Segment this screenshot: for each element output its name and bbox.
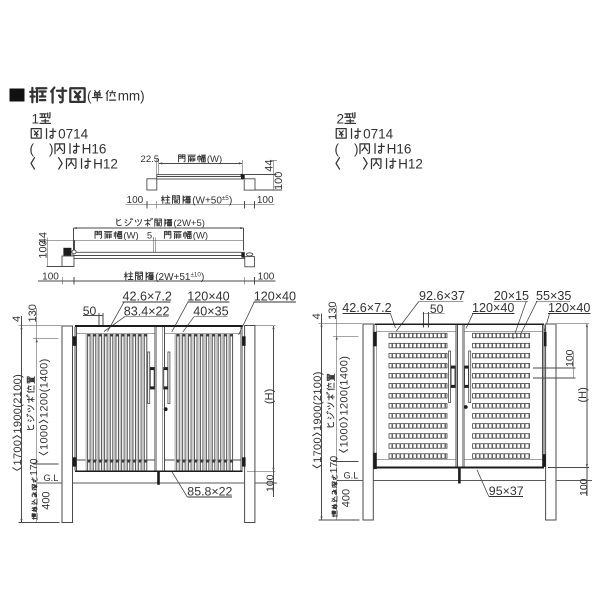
svg-text:400: 400 xyxy=(341,489,353,507)
svg-text:1200(1400): 1200(1400) xyxy=(38,358,50,418)
svg-text:0714: 0714 xyxy=(363,127,394,142)
svg-text:400: 400 xyxy=(41,491,53,509)
svg-text:0714: 0714 xyxy=(58,127,89,142)
svg-text:100: 100 xyxy=(257,195,274,206)
svg-text:1900(2100): 1900(2100) xyxy=(12,374,24,434)
svg-text:1: 1 xyxy=(32,112,40,127)
svg-text:1700: 1700 xyxy=(312,437,324,463)
svg-text:130: 130 xyxy=(27,304,39,322)
svg-text:170: 170 xyxy=(28,458,40,476)
svg-text:1000: 1000 xyxy=(338,422,350,448)
svg-text:(2W+51: (2W+51 xyxy=(155,272,191,283)
svg-text:92.6×37: 92.6×37 xyxy=(419,289,465,303)
svg-text:83.4×22: 83.4×22 xyxy=(124,304,170,318)
svg-text:100: 100 xyxy=(265,474,277,492)
svg-text:(H): (H) xyxy=(577,387,589,402)
svg-text:42.6×7.2: 42.6×7.2 xyxy=(342,301,391,315)
svg-text:): ) xyxy=(229,195,232,206)
svg-text:1200(1400): 1200(1400) xyxy=(338,356,350,416)
svg-text:( ): ( ) xyxy=(335,142,359,157)
svg-text:100: 100 xyxy=(127,195,144,206)
svg-text:H16: H16 xyxy=(82,142,107,157)
svg-text:100: 100 xyxy=(42,272,59,283)
svg-text:40×35: 40×35 xyxy=(193,304,228,318)
svg-text:G.L: G.L xyxy=(344,470,359,480)
svg-text:( ): ( ) xyxy=(30,142,54,157)
svg-text:H12: H12 xyxy=(398,157,423,172)
svg-text:G.L: G.L xyxy=(44,473,59,483)
svg-text:mm): mm) xyxy=(118,89,145,104)
svg-text:2: 2 xyxy=(337,112,345,127)
svg-text:100: 100 xyxy=(37,240,49,258)
svg-text:(W): (W) xyxy=(193,231,208,242)
svg-text:170: 170 xyxy=(328,456,340,474)
svg-text:1000: 1000 xyxy=(38,424,50,450)
svg-text:100: 100 xyxy=(273,172,285,190)
svg-text:(H): (H) xyxy=(264,389,276,404)
svg-text:1900(2100): 1900(2100) xyxy=(312,371,324,431)
svg-text:100: 100 xyxy=(258,272,275,283)
svg-text:): ) xyxy=(201,272,204,283)
svg-text:85.8×22: 85.8×22 xyxy=(187,484,232,498)
svg-text:100: 100 xyxy=(564,349,576,367)
svg-text:120×40: 120×40 xyxy=(548,301,590,315)
svg-text:1700: 1700 xyxy=(12,440,24,466)
svg-text:44: 44 xyxy=(264,159,276,171)
svg-text:100: 100 xyxy=(578,478,590,496)
svg-text:95×37: 95×37 xyxy=(489,484,524,498)
svg-text:120×40: 120×40 xyxy=(472,301,514,315)
svg-text:22.5: 22.5 xyxy=(141,154,160,165)
svg-text:H16: H16 xyxy=(387,142,412,157)
svg-text:(: ( xyxy=(87,89,92,104)
svg-text:±10: ±10 xyxy=(191,272,202,279)
svg-text:(W+50: (W+50 xyxy=(192,195,222,206)
svg-text:(2W+5): (2W+5) xyxy=(174,218,205,229)
svg-text:4: 4 xyxy=(11,316,23,322)
svg-text:H12: H12 xyxy=(93,157,118,172)
svg-text:(W): (W) xyxy=(123,231,138,242)
svg-text:4: 4 xyxy=(311,313,323,319)
svg-text:50: 50 xyxy=(83,304,97,318)
svg-text:130: 130 xyxy=(327,302,339,320)
